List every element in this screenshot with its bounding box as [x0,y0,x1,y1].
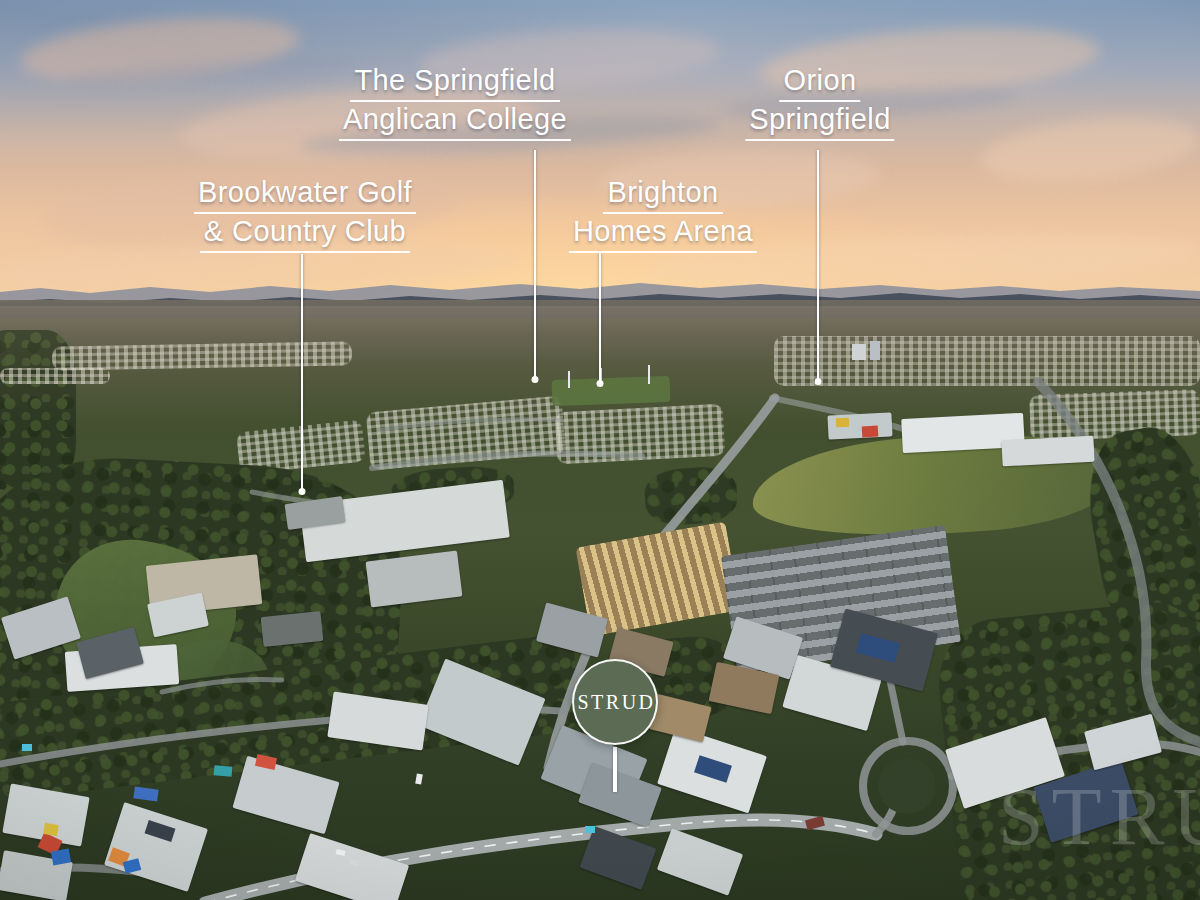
photo-shape [805,816,825,830]
photo-shape [1,596,81,659]
strud-badge-label: STRUD [574,691,655,714]
photo-shape [648,365,650,384]
photo-shape [261,611,324,647]
leader-line-springfield-anglican-college [534,150,536,380]
photo-shape [418,658,545,765]
photo-shape [852,344,866,360]
photo-shape [870,341,880,360]
photo-shape [214,765,233,777]
callout-text: Brighton [603,178,722,214]
photo-shape [232,756,339,834]
leader-line-brookwater-golf [301,254,303,492]
callout-text: Springfield [745,105,894,141]
leader-line-orion-springfield [817,150,819,382]
photo-shape [327,692,428,751]
strud-watermark: STRUD [998,770,1200,864]
callout-text: Anglican College [339,105,571,141]
photo-shape [104,802,208,892]
callout-text: Orion [780,66,861,102]
callout-orion-springfield: Orion Springfield [745,66,894,141]
photo-shape [657,828,743,895]
photo-shape [415,774,423,785]
callout-brighton-homes-arena: Brighton Homes Arena [569,178,757,253]
callout-text: & Country Club [200,217,410,253]
photo-shape [22,744,32,751]
photo-shape [585,826,595,833]
aerial-photo-scene: STRUD The Springfield Anglican College O… [0,0,1200,900]
photo-shape [878,758,936,814]
photo-shape [578,763,662,828]
buildings-layer [0,0,1200,900]
callout-text: Homes Arena [569,217,757,253]
callout-text: The Springfield [350,66,559,102]
badge-pointer-line [613,747,617,792]
callout-springfield-anglican-college: The Springfield Anglican College [339,66,571,141]
photo-shape [43,823,59,836]
photo-shape [836,418,849,428]
photo-shape [295,833,409,900]
callout-brookwater-golf-country-club: Brookwater Golf & Country Club [194,178,416,253]
photo-shape [1001,436,1094,467]
callout-text: Brookwater Golf [194,178,416,214]
photo-shape [579,826,656,890]
photo-shape [1084,714,1162,771]
leader-line-brighton-homes-arena [599,252,601,384]
photo-shape [133,786,158,801]
photo-shape [862,426,879,438]
strud-badge: STRUD [572,659,658,745]
photo-shape [366,551,463,608]
photo-shape [568,371,570,388]
